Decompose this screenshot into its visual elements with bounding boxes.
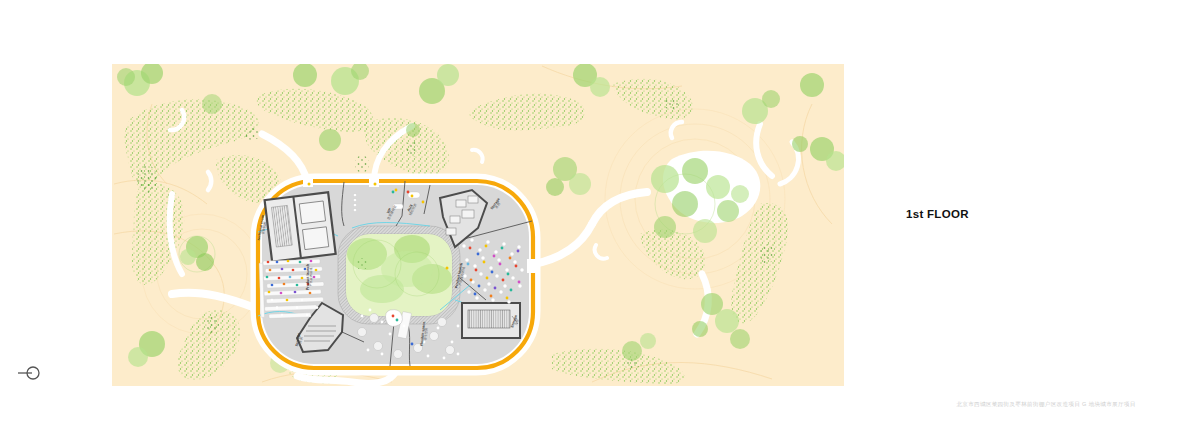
- entrance-gap: [303, 176, 313, 187]
- floor-plan-page: technical room 设备机房 VIP 贵宾接待室 AUX 辅助用房 S…: [0, 0, 1200, 424]
- site-plan-drawing: [112, 64, 844, 386]
- room-label-product-launch-left: Product launch 产品发布区域: [306, 264, 314, 290]
- room-label-zh: 产品发布区域: [310, 264, 314, 290]
- project-caption: 北京市西城区菜园街及枣林前街棚户区改造项目 G 地块城市展厅项目: [950, 401, 1142, 409]
- section-marker-icon: [16, 362, 48, 384]
- entrance-gap: [369, 176, 379, 187]
- courtyard: [338, 226, 460, 324]
- floor-title: 1st FLOOR: [906, 208, 969, 220]
- technical-room: [265, 192, 336, 261]
- entrance-gap: [527, 259, 538, 273]
